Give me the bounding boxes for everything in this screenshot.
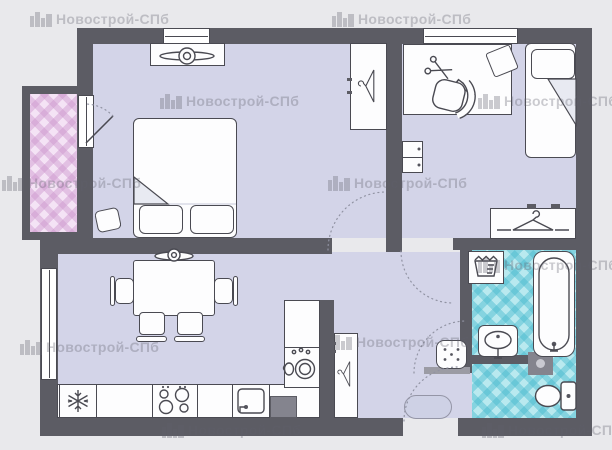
watermark: Новострой-СПб [2, 174, 141, 191]
wall-middle-vertical [386, 28, 402, 252]
window-kitchen [41, 268, 57, 380]
bathroom-sink [478, 325, 518, 357]
doormat-rug [404, 395, 452, 419]
buildings-icon [162, 421, 184, 438]
watermark-label: Новострой-СПб [186, 94, 299, 108]
buildings-icon [328, 174, 350, 191]
watermark: Новострой-СПб [482, 421, 612, 438]
tall-cabinet [284, 300, 320, 388]
watermark: Новострой-СПб [20, 338, 159, 355]
watermark-label: Новострой-СПб [508, 423, 612, 437]
watermark: Новострой-СПб [478, 92, 612, 109]
closet-door-mark [527, 204, 536, 209]
buildings-icon [20, 338, 42, 355]
balcony-floor [30, 94, 77, 232]
watermark-label: Новострой-СПб [358, 12, 471, 26]
watermark-label: Новострой-СПб [56, 12, 169, 26]
watermark-label: Новострой-СПб [504, 258, 612, 272]
closet-door-mark [551, 204, 560, 209]
chair-back [233, 276, 238, 306]
chair-seat [115, 278, 134, 304]
watermark: Новострой-СПб [160, 92, 299, 109]
wall-balcony-top [22, 86, 88, 94]
chair-back [174, 336, 205, 342]
pillow [190, 205, 234, 234]
watermark: Новострой-СПб [478, 256, 612, 273]
wall-hall-kitchen [319, 300, 334, 418]
watermark: Новострой-СПб [332, 10, 471, 27]
watermark: Новострой-СПб [330, 333, 469, 350]
pillow [139, 205, 183, 234]
balcony-door-panel [78, 95, 94, 148]
wardrobe-door-mark [347, 78, 352, 81]
buildings-icon [30, 10, 52, 27]
window-bedroom [163, 28, 210, 44]
watermark: Новострой-СПб [328, 174, 467, 191]
watermark-label: Новострой-СПб [504, 94, 612, 108]
stove [152, 384, 198, 418]
wardrobe-bedroom [350, 43, 387, 130]
drawer-divider [402, 157, 423, 158]
buildings-icon [332, 10, 354, 27]
window-children-room [423, 28, 518, 44]
wall-balcony-bottom [22, 232, 88, 240]
wall-children-bottom [453, 238, 576, 250]
buildings-icon [330, 333, 352, 350]
wall-bedroom-bottom [41, 238, 332, 254]
wardrobe-door-mark [347, 91, 352, 94]
dresser [150, 43, 225, 66]
wall-balcony-left [22, 86, 30, 240]
buildings-icon [478, 256, 500, 273]
refrigerator [59, 384, 97, 418]
watermark: Новострой-СПб [162, 421, 301, 438]
kitchen-sink [232, 384, 270, 418]
closet-children [490, 208, 576, 239]
wardrobe-door-mark [332, 350, 336, 353]
wall-right [576, 28, 592, 436]
buildings-icon [160, 92, 182, 109]
pillow [531, 49, 575, 79]
watermark-label: Новострой-СПб [354, 176, 467, 190]
cabinet-divider [284, 347, 320, 348]
watermark-label: Новострой-СПб [188, 423, 301, 437]
chair-seat [214, 278, 233, 304]
watermark-label: Новострой-СПб [356, 335, 469, 349]
chair-seat [139, 312, 165, 335]
watermark: Новострой-СПб [30, 10, 169, 27]
watermark-label: Новострой-СПб [28, 176, 141, 190]
floor-plan: Новострой-СПбНовострой-СПбНовострой-СПбН… [0, 0, 612, 450]
dining-table [133, 260, 215, 316]
buildings-icon [482, 421, 504, 438]
under-counter-unit [270, 396, 297, 418]
buildings-icon [478, 92, 500, 109]
chair-seat [177, 312, 203, 335]
buildings-icon [2, 174, 24, 191]
watermark-label: Новострой-СПб [46, 340, 159, 354]
